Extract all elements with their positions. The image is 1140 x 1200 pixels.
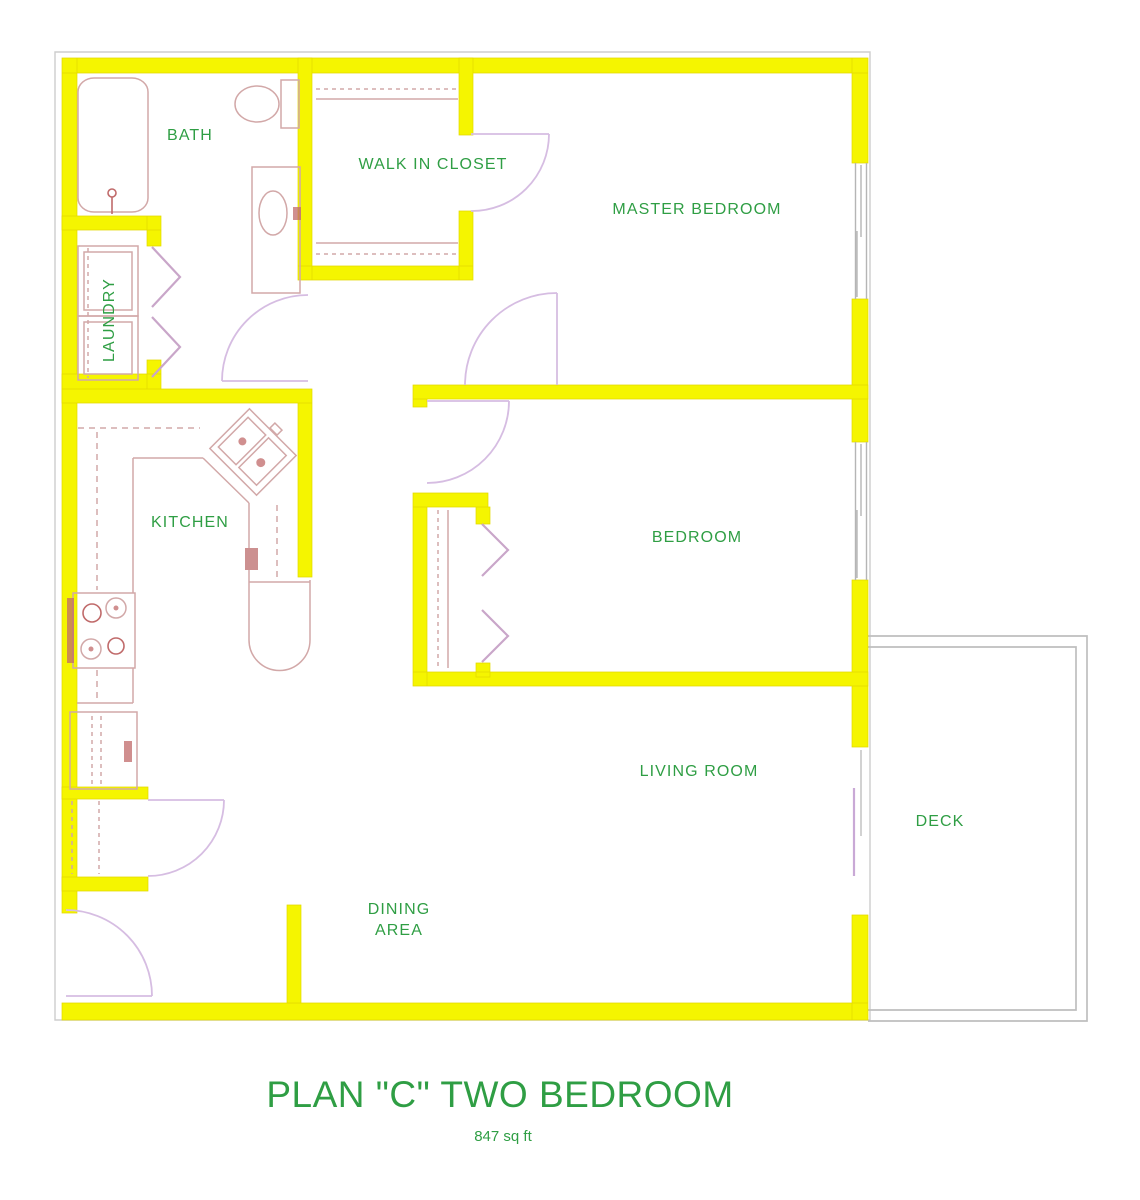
room-labels: BATH LAUNDRY WALK IN CLOSET MASTER BEDRO… [101, 127, 964, 939]
sink-faucet [293, 207, 301, 220]
front-door [66, 910, 152, 996]
deck-sliding-door [854, 750, 861, 876]
counter-edge [77, 458, 249, 703]
sink-drain-left [237, 436, 248, 447]
bedroom-closet-shelf [438, 510, 448, 668]
sink-faucet [270, 423, 282, 435]
dining-area-label-line1: DINING [368, 901, 431, 918]
door-swing-arc [148, 800, 224, 876]
plan-outline-frame [55, 52, 870, 1020]
toilet [235, 80, 299, 128]
window-glass-lines [856, 442, 867, 580]
kitchen-corner-sink [210, 403, 302, 495]
pantry-door [148, 800, 224, 876]
fridge-handle [124, 741, 132, 762]
bedroom-label: BEDROOM [652, 529, 742, 546]
bedroom-door [427, 401, 509, 483]
bath-door [222, 295, 308, 381]
dining-area-label-line2: AREA [375, 922, 423, 939]
laundry-bifold-door [152, 247, 180, 377]
burner-center [89, 647, 94, 652]
refrigerator [70, 712, 137, 789]
kitchen-counter [77, 428, 249, 703]
bifold-panels [152, 247, 180, 377]
burner [108, 638, 124, 654]
laundry-label: LAUNDRY [101, 278, 118, 362]
deck-outer-line [868, 636, 1087, 1021]
bathroom-sink [252, 167, 301, 293]
bath-label: BATH [167, 127, 213, 144]
deck-label: DECK [916, 813, 965, 830]
dishwasher [245, 548, 258, 570]
vanity-counter [252, 167, 300, 293]
burner-center [114, 606, 119, 611]
sink-bowl [259, 191, 287, 235]
plan-area-label: 847 sq ft [474, 1128, 532, 1145]
deck-inner-line [868, 647, 1076, 1010]
kitchen-label: KITCHEN [151, 514, 229, 531]
tub-outline [78, 78, 148, 212]
toilet-bowl [235, 86, 279, 122]
door-swing-arc [465, 293, 557, 385]
toilet-tank [281, 80, 299, 128]
master-bedroom-window [856, 163, 867, 299]
walk-in-closet-label: WALK IN CLOSET [358, 156, 507, 173]
plan-title: PLAN "C" TWO BEDROOM [266, 1074, 733, 1115]
upper-cabinet-dashed [78, 428, 200, 700]
deck-outline [868, 636, 1087, 1021]
stove-control-strip [67, 598, 74, 663]
master-bedroom-door [465, 293, 557, 385]
door-swing-arc [222, 295, 308, 381]
burner [83, 604, 101, 622]
bedroom-closet-bifold-door [482, 524, 508, 662]
floor-plan-drawing: BATH LAUNDRY WALK IN CLOSET MASTER BEDRO… [0, 0, 1140, 1200]
bifold-panels [482, 524, 508, 662]
sink-drain-right [254, 456, 267, 469]
tub-drain [108, 189, 116, 197]
fridge-depth-dashed [92, 716, 101, 785]
peninsula-rounded-end [249, 640, 310, 670]
master-bedroom-label: MASTER BEDROOM [612, 201, 781, 218]
bathtub [78, 78, 148, 214]
living-room-label: LIVING ROOM [640, 763, 759, 780]
bedroom-window [856, 442, 867, 580]
door-swing-arc [66, 910, 152, 996]
door-swing-arc [427, 401, 509, 483]
window-glass-lines [856, 163, 867, 299]
floor-plan-page: BATH LAUNDRY WALK IN CLOSET MASTER BEDRO… [0, 0, 1140, 1200]
